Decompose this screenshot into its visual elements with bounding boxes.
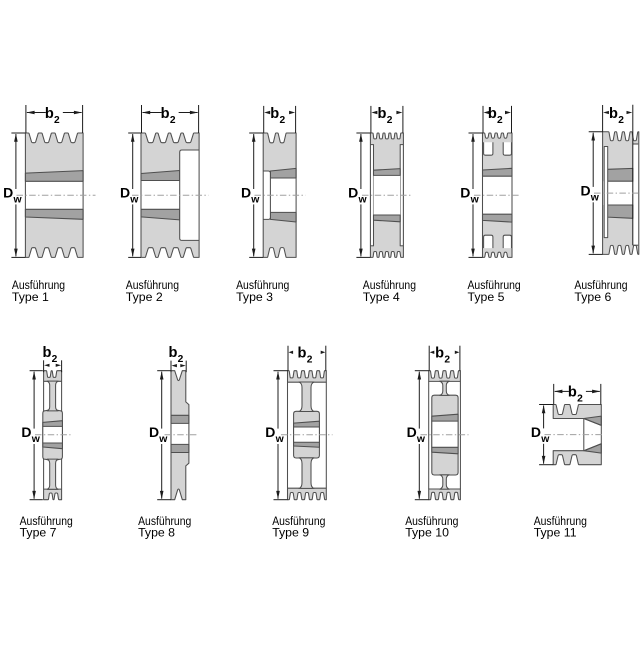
- svg-text:2: 2: [170, 115, 176, 126]
- svg-text:D: D: [531, 424, 541, 440]
- svg-text:w: w: [13, 195, 23, 206]
- svg-text:Type 8: Type 8: [138, 525, 175, 539]
- svg-text:w: w: [129, 195, 139, 206]
- svg-text:b: b: [168, 345, 177, 361]
- svg-text:D: D: [3, 184, 13, 200]
- svg-text:Type 6: Type 6: [574, 290, 611, 304]
- svg-text:2: 2: [618, 115, 624, 126]
- svg-text:D: D: [120, 184, 130, 200]
- svg-text:w: w: [470, 195, 480, 206]
- svg-text:w: w: [590, 193, 600, 204]
- svg-text:2: 2: [178, 354, 184, 365]
- svg-text:D: D: [407, 424, 417, 440]
- svg-text:b: b: [568, 385, 577, 401]
- svg-text:2: 2: [577, 394, 583, 405]
- svg-text:w: w: [250, 195, 260, 206]
- svg-text:D: D: [580, 182, 590, 198]
- svg-text:Type 9: Type 9: [272, 525, 309, 539]
- svg-text:b: b: [297, 346, 306, 362]
- svg-text:Type 2: Type 2: [126, 290, 163, 304]
- svg-text:w: w: [358, 195, 368, 206]
- svg-text:Type 3: Type 3: [236, 290, 273, 304]
- svg-text:w: w: [158, 434, 168, 445]
- svg-text:b: b: [161, 106, 170, 122]
- svg-text:w: w: [540, 434, 550, 445]
- svg-text:2: 2: [52, 354, 58, 365]
- svg-text:D: D: [460, 184, 470, 200]
- svg-text:b: b: [270, 106, 279, 122]
- svg-text:D: D: [348, 184, 358, 200]
- svg-text:b: b: [42, 345, 51, 361]
- svg-text:2: 2: [54, 115, 60, 126]
- svg-text:D: D: [21, 424, 31, 440]
- svg-text:Type 5: Type 5: [468, 290, 505, 304]
- svg-text:Type 7: Type 7: [20, 525, 57, 539]
- svg-text:2: 2: [307, 355, 313, 366]
- svg-text:D: D: [149, 424, 159, 440]
- svg-text:D: D: [265, 424, 275, 440]
- svg-text:Type 4: Type 4: [363, 290, 400, 304]
- svg-text:Type 10: Type 10: [405, 525, 449, 539]
- svg-text:2: 2: [497, 115, 503, 126]
- svg-text:2: 2: [444, 355, 450, 366]
- svg-text:b: b: [45, 106, 54, 122]
- svg-text:b: b: [377, 106, 386, 122]
- svg-text:Type 11: Type 11: [534, 525, 577, 539]
- svg-text:b: b: [488, 106, 497, 122]
- svg-text:b: b: [609, 106, 618, 122]
- svg-text:Type 1: Type 1: [12, 290, 49, 304]
- svg-text:2: 2: [279, 115, 285, 126]
- svg-text:w: w: [416, 434, 426, 445]
- svg-text:D: D: [241, 184, 251, 200]
- svg-text:w: w: [275, 434, 285, 445]
- svg-text:b: b: [435, 346, 444, 362]
- svg-text:2: 2: [387, 115, 393, 126]
- svg-text:w: w: [31, 434, 41, 445]
